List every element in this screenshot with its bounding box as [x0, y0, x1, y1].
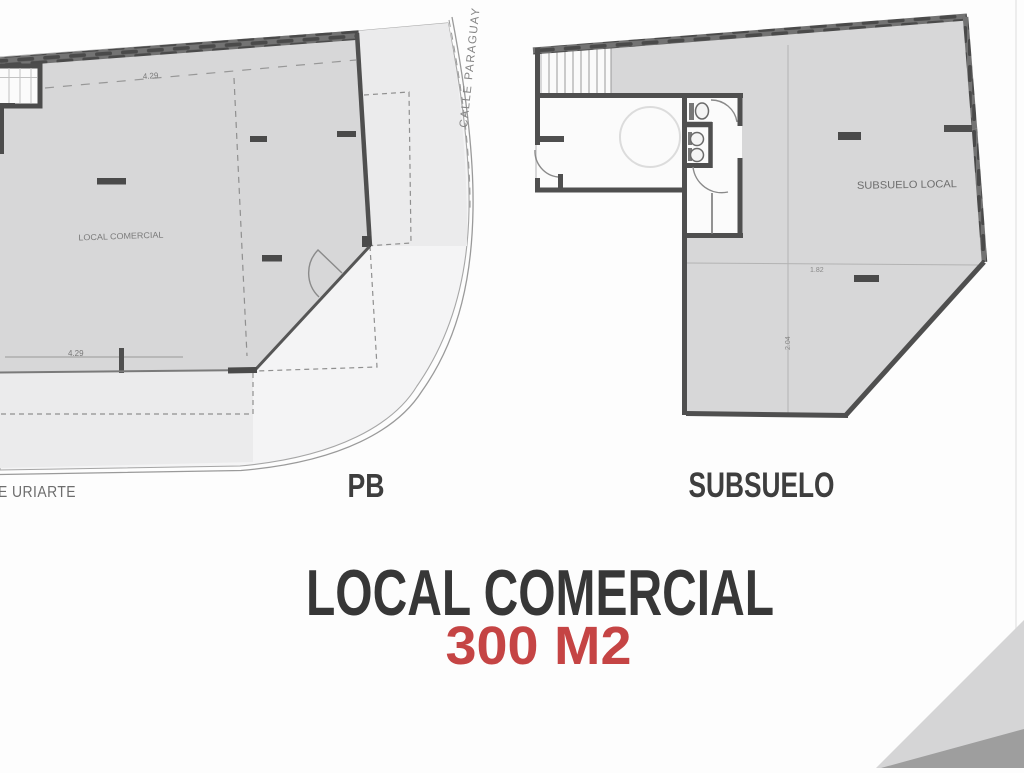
svg-text:E URIARTE: E URIARTE	[0, 484, 76, 501]
svg-text:1.82: 1.82	[810, 267, 824, 274]
svg-text:SUBSUELO LOCAL: SUBSUELO LOCAL	[857, 178, 957, 192]
svg-text:4.29: 4.29	[143, 71, 160, 81]
svg-text:2.04: 2.04	[785, 336, 792, 350]
svg-text:300 M2: 300 M2	[446, 616, 632, 676]
svg-text:4.29: 4.29	[68, 349, 84, 358]
svg-text:SUBSUELO: SUBSUELO	[689, 466, 835, 505]
svg-text:PB: PB	[348, 467, 385, 504]
